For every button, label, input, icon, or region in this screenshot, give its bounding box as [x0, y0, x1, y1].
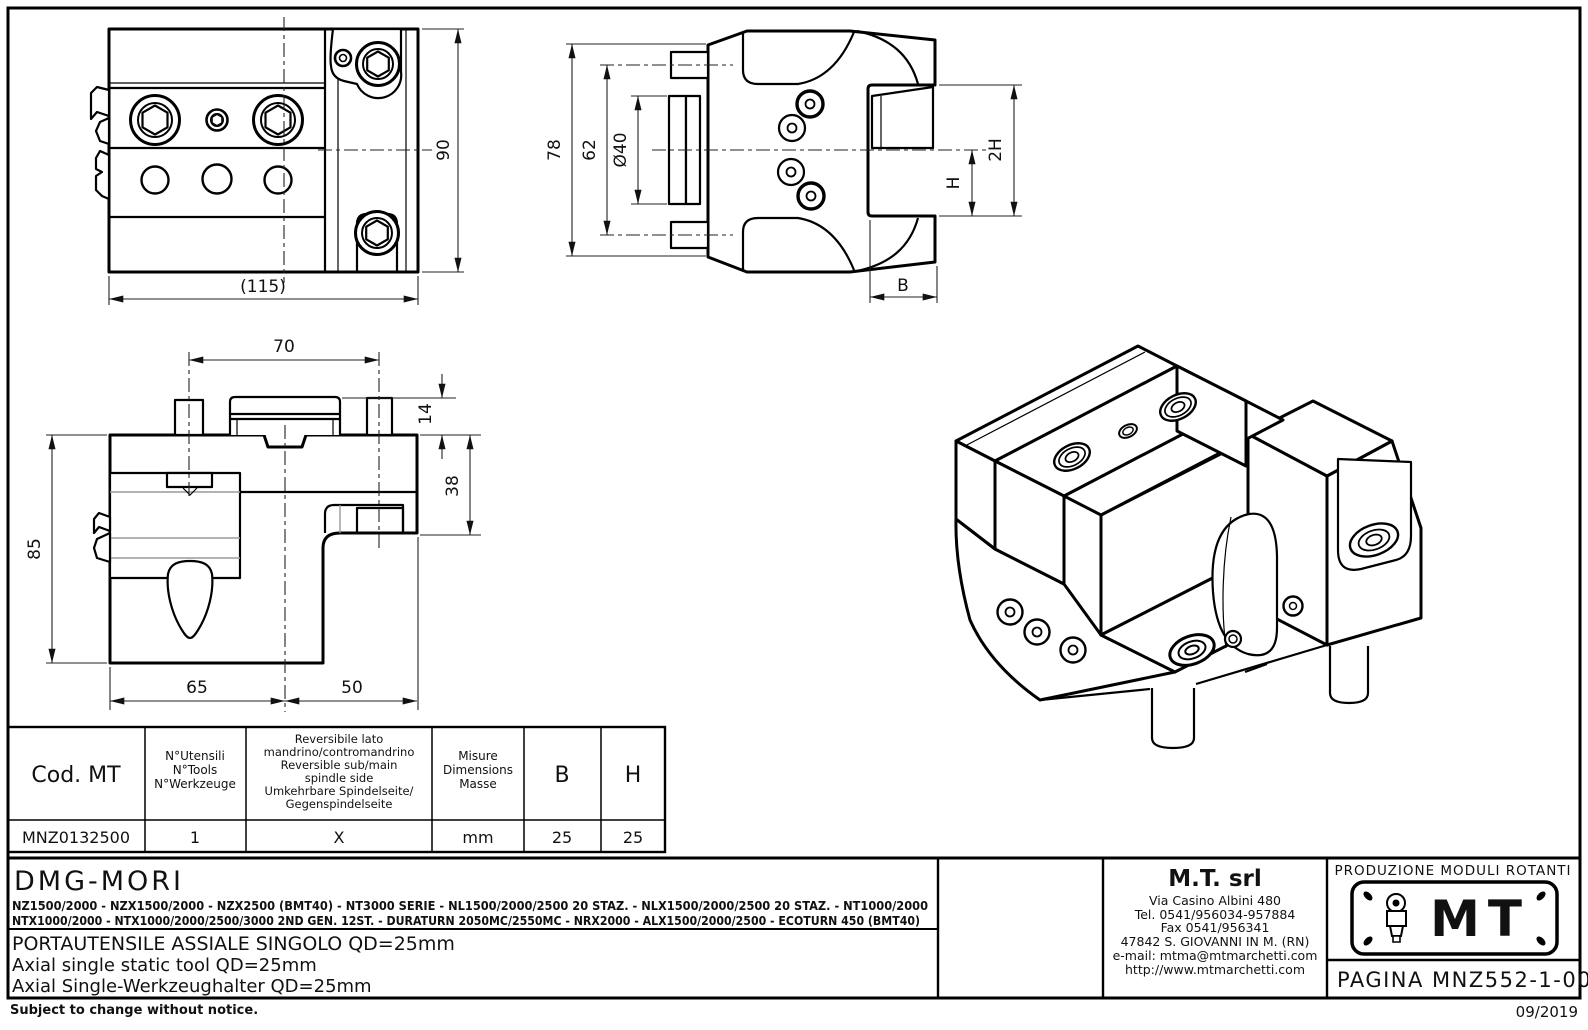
clamp-pocket: [110, 473, 240, 578]
dimension-62: 62: [580, 65, 607, 235]
svg-text:Masse: Masse: [459, 777, 497, 791]
footer-note: Subject to change without notice.: [10, 1003, 258, 1018]
machine-list-line1: NZ1500/2000 - NZX1500/2000 - NZX2500 (BM…: [12, 899, 928, 913]
svg-text:1: 1: [190, 828, 200, 847]
table-row: MNZ0132500 1 X mm 25 25: [22, 828, 643, 847]
svg-text:Via Casino Albini 480: Via Casino Albini 480: [1149, 893, 1281, 908]
svg-text:47842 S. GIOVANNI IN M. (RN): 47842 S. GIOVANNI IN M. (RN): [1121, 934, 1310, 949]
svg-text:25: 25: [623, 828, 643, 847]
screw-icon: [1284, 597, 1303, 616]
col-header-units: Misure Dimensions Masse: [443, 749, 513, 791]
dim-label: 85: [25, 538, 45, 560]
spec-table: Cod. MT N°Utensili N°Tools N°Werkzeuge R…: [8, 727, 665, 852]
dim-label: (115): [240, 277, 286, 297]
svg-text:MNZ0132500: MNZ0132500: [22, 828, 130, 847]
part-title-en: Axial single static tool QD=25mm: [12, 955, 317, 976]
view-isometric: [956, 346, 1421, 748]
svg-text:Fax 0541/956341: Fax 0541/956341: [1161, 920, 1270, 935]
mt-logo: MT: [1352, 882, 1557, 954]
svg-text:Umkehrbare Spindelseite/: Umkehrbare Spindelseite/: [265, 784, 414, 798]
svg-text:N°Tools: N°Tools: [173, 763, 218, 777]
view-front: 90 (115): [91, 17, 464, 305]
company-address: Via Casino Albini 480 Tel. 0541/956034-9…: [1113, 893, 1318, 977]
dim-label: 14: [416, 403, 436, 425]
screw-icon: [779, 115, 805, 141]
socket-bolt-icon: [357, 43, 400, 86]
logo-text: MT: [1430, 890, 1530, 948]
svg-text:Gegenspindelseite: Gegenspindelseite: [286, 797, 393, 811]
pin-hole-icon: [335, 50, 351, 66]
dim-label: 38: [443, 475, 463, 497]
machine-list-line2: NTX1000/2000 - NTX1000/2000/2500/3000 2N…: [12, 914, 920, 928]
dim-label: B: [897, 276, 909, 296]
socket-bolt-icon: [207, 110, 228, 131]
part-title-de: Axial Single-Werkzeughalter QD=25mm: [12, 976, 372, 997]
dim-label: 78: [545, 139, 565, 161]
dimension-70: 70: [189, 337, 379, 360]
dim-label: 62: [580, 139, 600, 161]
title-block: DMG-MORI NZ1500/2000 - NZX1500/2000 - NZ…: [8, 858, 1588, 998]
col-header-code: Cod. MT: [31, 763, 121, 788]
col-header-tools: N°Utensili N°Tools N°Werkzeuge: [154, 749, 236, 791]
clamp-screw-side: [94, 513, 110, 533]
svg-text:N°Werkzeuge: N°Werkzeuge: [154, 777, 236, 791]
col-header-b: B: [554, 763, 569, 788]
dimension-38: 38: [420, 435, 481, 535]
svg-text:http://www.mtmarchetti.com: http://www.mtmarchetti.com: [1125, 962, 1305, 977]
customer-brand: DMG-MORI: [14, 866, 184, 897]
dim-label: Ø40: [611, 132, 631, 167]
dim-label: H: [944, 177, 964, 190]
hole-icon: [265, 167, 292, 194]
clamp-screw-side: [91, 87, 109, 119]
screw-icon: [998, 600, 1023, 625]
svg-text:mm: mm: [462, 828, 493, 847]
footer-date: 09/2019: [1516, 1003, 1578, 1021]
screw-icon: [1025, 620, 1050, 645]
svg-text:Reversible sub/main: Reversible sub/main: [281, 758, 398, 772]
screw-icon: [778, 159, 804, 185]
production-label: PRODUZIONE MODULI ROTANTI: [1334, 863, 1571, 879]
dimension-h: H: [944, 150, 972, 216]
svg-text:Reversibile lato: Reversibile lato: [295, 732, 384, 746]
svg-text:spindle side: spindle side: [305, 771, 374, 785]
socket-bolt-icon: [356, 212, 399, 255]
drawing-sheet: 90 (115): [0, 0, 1588, 1030]
svg-text:X: X: [334, 828, 345, 847]
col-header-h: H: [625, 763, 642, 788]
dimension-50: 50: [285, 678, 417, 701]
dim-label: 2H: [986, 138, 1006, 162]
screw-icon: [797, 91, 823, 117]
part-title-it: PORTAUTENSILE ASSIALE SINGOLO QD=25mm: [12, 933, 455, 955]
col-header-reversible: Reversibile lato mandrino/contromandrino…: [264, 732, 415, 811]
socket-bolt-icon: [254, 96, 303, 145]
dim-label: 70: [273, 337, 295, 357]
svg-text:e-mail: mtma@mtmarchetti.com: e-mail: mtma@mtmarchetti.com: [1113, 948, 1318, 963]
hole-icon: [142, 167, 169, 194]
svg-text:N°Utensili: N°Utensili: [165, 749, 225, 763]
dimension-115: (115): [109, 276, 418, 305]
svg-text:25: 25: [552, 828, 572, 847]
company-name: M.T. srl: [1168, 866, 1261, 892]
svg-text:Misure: Misure: [458, 749, 498, 763]
svg-text:Dimensions: Dimensions: [443, 763, 513, 777]
dim-label: 50: [341, 678, 363, 698]
dim-label: 90: [434, 139, 454, 161]
page-code: PAGINA MNZ552-1-00: [1337, 968, 1588, 992]
view-profile: 70 14 38 85 65 50: [25, 337, 481, 712]
technical-drawing: 90 (115): [0, 0, 1588, 1030]
screw-icon: [1061, 638, 1086, 663]
foot-cylinder: [1330, 646, 1368, 703]
socket-bolt-icon: [131, 96, 180, 145]
foot-cylinder: [1152, 688, 1194, 748]
hole-icon: [203, 165, 232, 194]
hex-nut-icon: [1225, 631, 1241, 647]
screw-icon: [798, 183, 824, 209]
dim-label: 65: [186, 678, 208, 698]
view-side: 78 62 Ø40 2H H B: [545, 31, 1022, 303]
svg-text:mandrino/contromandrino: mandrino/contromandrino: [264, 745, 415, 759]
